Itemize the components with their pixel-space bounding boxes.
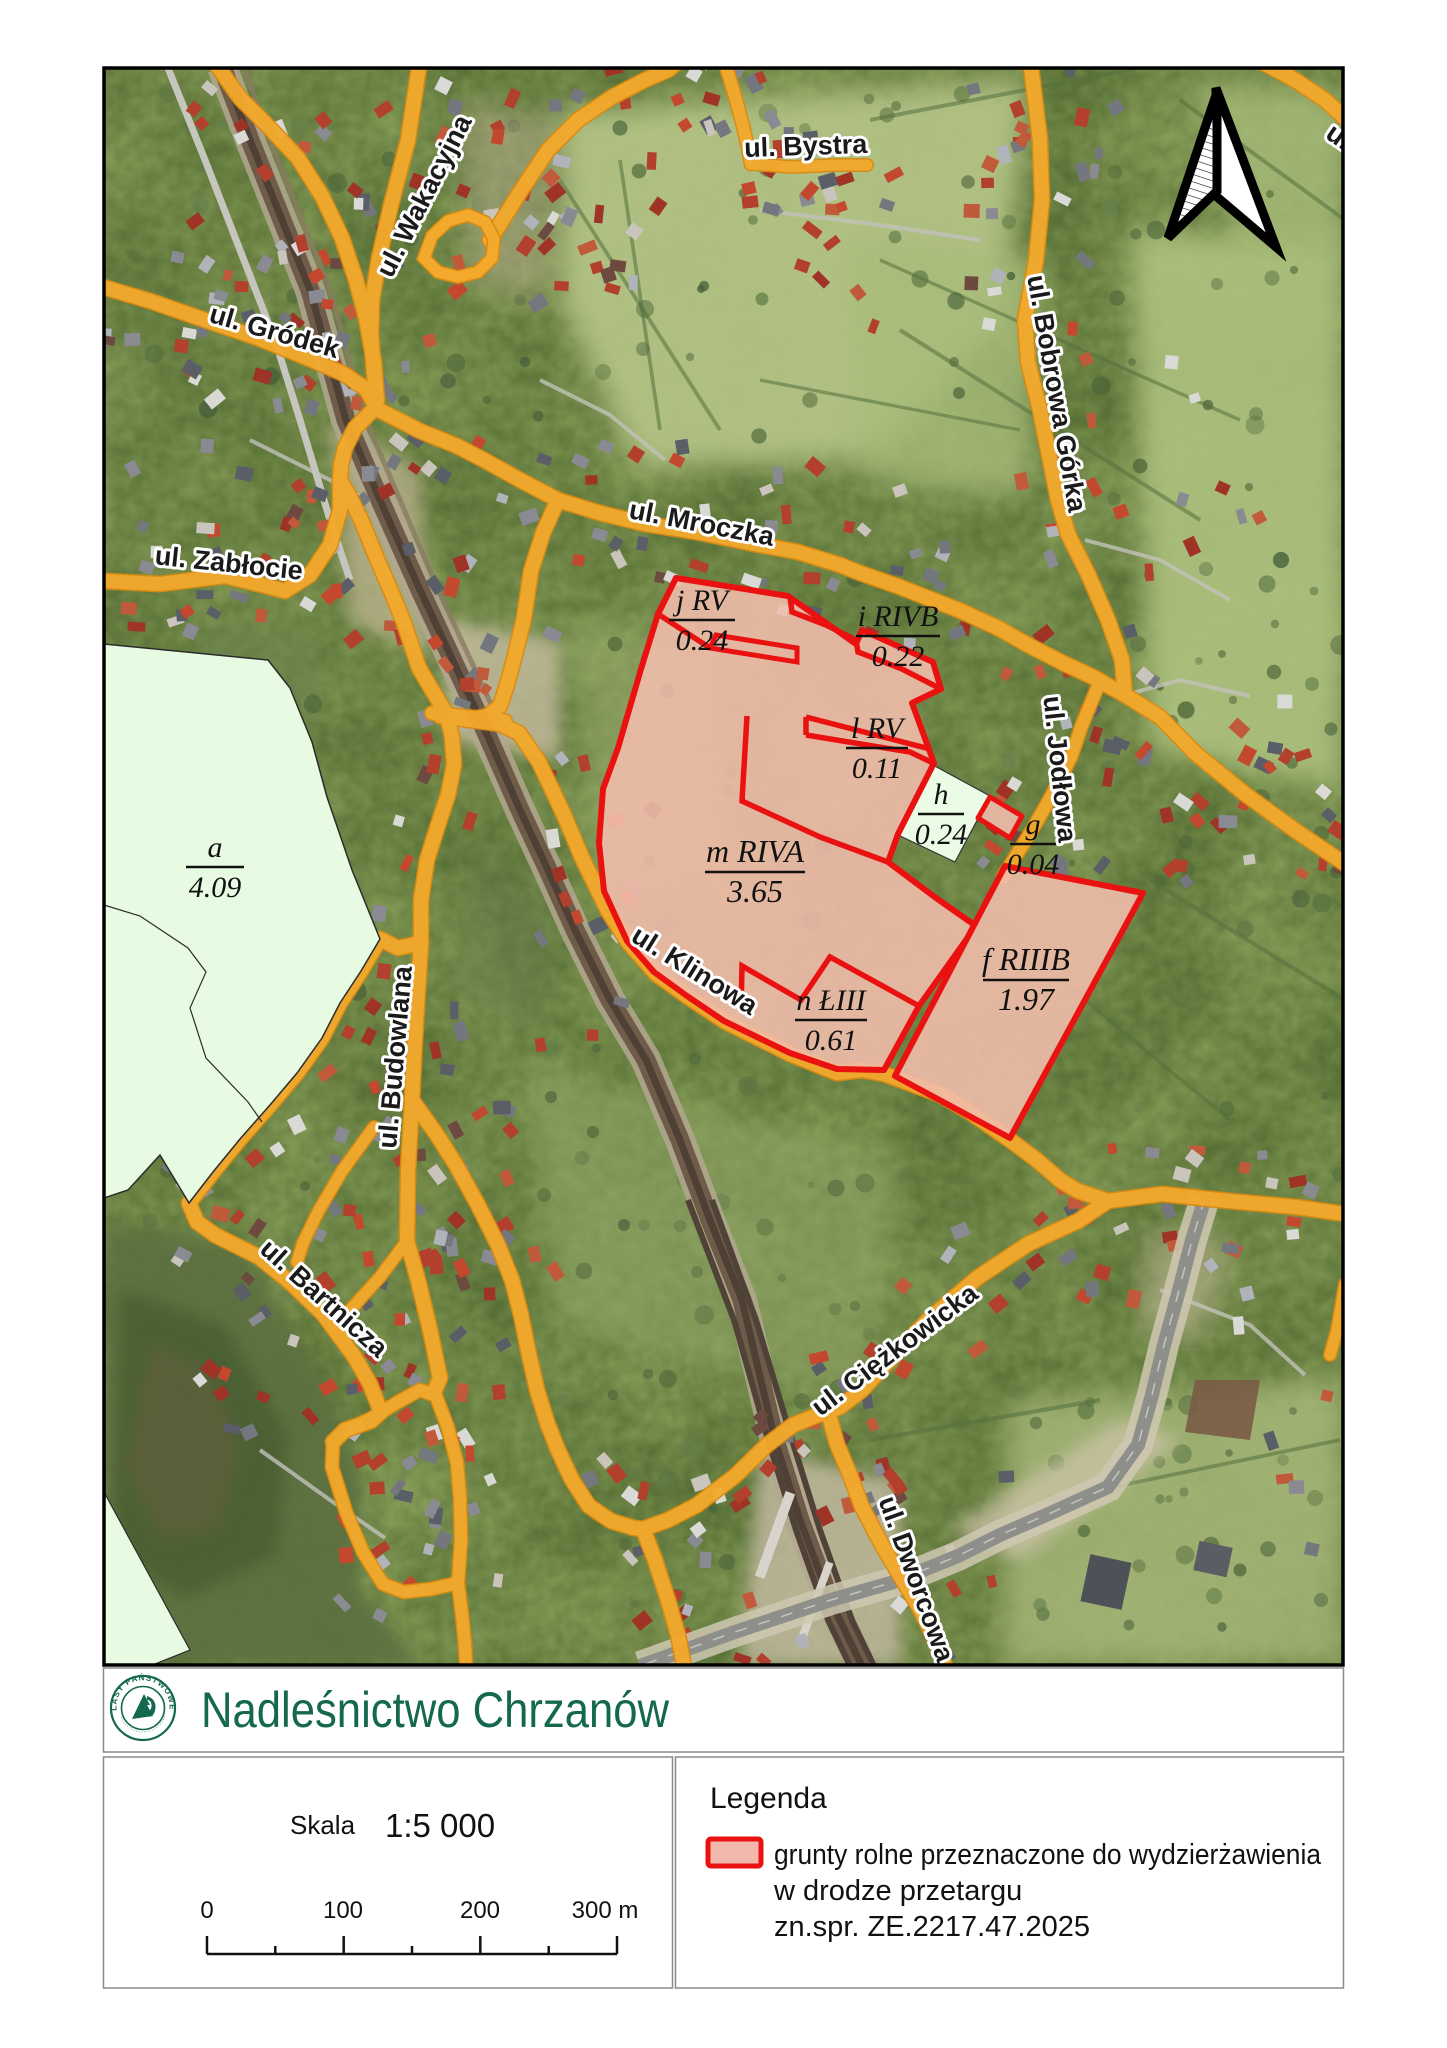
svg-text:ul. Bystra: ul. Bystra — [744, 129, 869, 163]
svg-text:Skala: Skala — [290, 1810, 356, 1840]
svg-text:h: h — [934, 778, 949, 811]
svg-text:0.22: 0.22 — [872, 640, 925, 673]
svg-text:200: 200 — [460, 1897, 500, 1924]
svg-text:n ŁIII: n ŁIII — [796, 984, 867, 1017]
svg-text:zn.spr. ZE.2217.47.2025: zn.spr. ZE.2217.47.2025 — [774, 1911, 1090, 1943]
svg-text:Nadleśnictwo Chrzanów: Nadleśnictwo Chrzanów — [201, 1682, 670, 1738]
svg-text:grunty rolne przeznaczone do w: grunty rolne przeznaczone do wydzierżawi… — [774, 1839, 1322, 1871]
svg-text:1:5 000: 1:5 000 — [385, 1807, 495, 1844]
svg-text:4.09: 4.09 — [189, 871, 242, 904]
svg-text:j RV: j RV — [672, 584, 732, 617]
svg-text:3.65: 3.65 — [726, 873, 783, 909]
svg-text:0.24: 0.24 — [676, 624, 729, 657]
svg-text:a: a — [208, 831, 223, 864]
svg-text:f RIIIB: f RIIIB — [982, 941, 1070, 977]
svg-text:0: 0 — [200, 1897, 213, 1924]
svg-text:100: 100 — [323, 1897, 363, 1924]
svg-text:0.61: 0.61 — [805, 1024, 858, 1057]
svg-text:m RIVA: m RIVA — [706, 833, 804, 869]
svg-text:0.04: 0.04 — [1007, 848, 1060, 881]
svg-text:l RV: l RV — [851, 712, 907, 745]
svg-text:0.24: 0.24 — [915, 818, 968, 851]
svg-text:1.97: 1.97 — [998, 981, 1056, 1017]
svg-text:Legenda: Legenda — [710, 1782, 827, 1815]
svg-text:0.11: 0.11 — [852, 752, 902, 785]
svg-text:i RIVB: i RIVB — [858, 600, 939, 633]
svg-text:w drodze przetargu: w drodze przetargu — [773, 1875, 1022, 1907]
svg-text:g: g — [1026, 808, 1041, 841]
svg-text:300 m: 300 m — [572, 1897, 639, 1924]
